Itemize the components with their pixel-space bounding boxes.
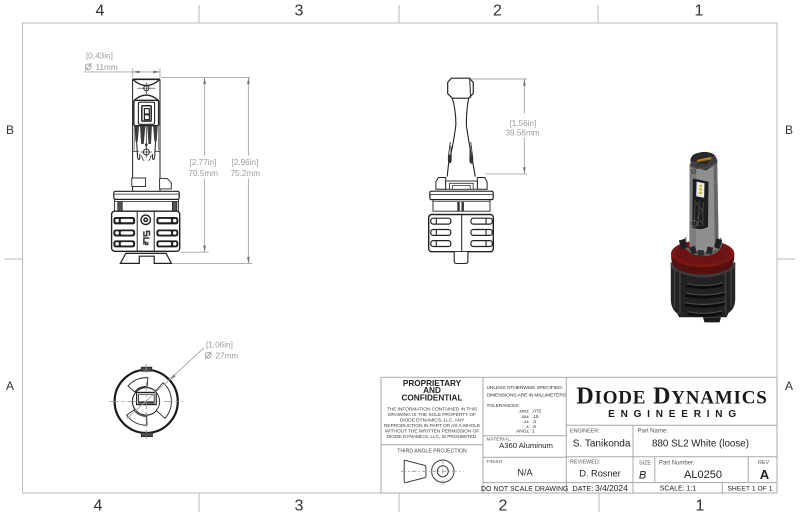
svg-text:2: 2 — [493, 3, 502, 20]
svg-text:DRAWING IS THE SOLE PROPERTY O: DRAWING IS THE SOLE PROPERTY OF — [388, 412, 476, 418]
svg-text:.xx±: .xx± — [520, 414, 529, 420]
svg-text:880 SL2 White (loose): 880 SL2 White (loose) — [652, 438, 749, 449]
svg-text:[1.56in]: [1.56in] — [510, 119, 537, 128]
svg-text:2: 2 — [499, 498, 508, 515]
svg-text:A: A — [785, 379, 793, 393]
svg-text:[0.43in]: [0.43in] — [86, 51, 113, 60]
svg-text:1: 1 — [696, 498, 705, 515]
svg-text:A: A — [6, 379, 14, 393]
svg-text:B: B — [639, 469, 646, 481]
svg-text:SHEET 1 OF 1: SHEET 1 OF 1 — [727, 486, 772, 493]
svg-text:REVIEWED:: REVIEWED: — [570, 459, 600, 465]
svg-text:11mm: 11mm — [96, 63, 118, 72]
svg-text:[2.96in]: [2.96in] — [232, 158, 259, 167]
svg-text:DIMENSIONS ARE IN MILLIMETERS: DIMENSIONS ARE IN MILLIMETERS — [487, 393, 567, 399]
svg-text:Part Name:: Part Name: — [638, 429, 669, 435]
svg-text:.075: .075 — [532, 409, 541, 415]
svg-text:B: B — [785, 123, 793, 137]
svg-text:D. Rosner: D. Rosner — [579, 469, 620, 479]
svg-text:[2.77in]: [2.77in] — [190, 158, 217, 167]
svg-text:CONFIDENTIAL: CONFIDENTIAL — [402, 394, 463, 403]
svg-text:27mm: 27mm — [216, 351, 239, 360]
svg-text:4: 4 — [94, 498, 103, 515]
svg-text:1: 1 — [532, 429, 535, 435]
svg-text:A: A — [760, 467, 770, 482]
svg-text:UNLESS OTHERWISE SPECIFIED:: UNLESS OTHERWISE SPECIFIED: — [487, 385, 563, 391]
svg-text:39.56mm: 39.56mm — [506, 129, 540, 138]
svg-text:AL0250: AL0250 — [684, 469, 722, 481]
svg-text:DO NOT SCALE DRAWING: DO NOT SCALE DRAWING — [481, 486, 569, 493]
svg-text:ANG±: ANG± — [516, 429, 529, 435]
svg-text:1: 1 — [695, 3, 704, 20]
svg-text:3: 3 — [295, 3, 304, 20]
svg-text:DIODE DYNAMICS, LLC, IS PROHIB: DIODE DYNAMICS, LLC, IS PROHIBITED. — [387, 434, 478, 440]
svg-text:WITHOUT THE WRITTEN PERMISSION: WITHOUT THE WRITTEN PERMISSION OF — [385, 429, 479, 435]
svg-text:.xxx±: .xxx± — [518, 409, 529, 415]
svg-text:REPRODUCTION IN PART OR AS A W: REPRODUCTION IN PART OR AS A WHOLE — [384, 423, 481, 429]
svg-text:ENGINEER:: ENGINEER: — [570, 428, 600, 434]
svg-text:REV: REV — [758, 460, 769, 466]
svg-text:DATE: 3/4/2024: DATE: 3/4/2024 — [573, 483, 629, 493]
svg-text:3: 3 — [295, 498, 304, 515]
svg-text:N/A: N/A — [517, 468, 532, 478]
svg-text:THIRD ANGLE PROJECTION: THIRD ANGLE PROJECTION — [397, 449, 467, 455]
svg-text:70.5mm: 70.5mm — [189, 169, 219, 178]
svg-text:SIZE: SIZE — [639, 460, 651, 466]
svg-text:DIODE DYNAMICS, LLC. ANY: DIODE DYNAMICS, LLC. ANY — [400, 418, 465, 424]
svg-text:B: B — [6, 123, 14, 137]
svg-text:SCALE: 1:1: SCALE: 1:1 — [660, 486, 697, 493]
svg-text:[1.06in]: [1.06in] — [206, 340, 233, 349]
svg-text:FINISH:: FINISH: — [487, 459, 504, 465]
svg-text:ENGINEERING: ENGINEERING — [608, 409, 742, 420]
svg-text:S. Tanikonda: S. Tanikonda — [573, 438, 631, 449]
svg-text:THE INFORMATION CONTAINED IN T: THE INFORMATION CONTAINED IN THIS — [387, 407, 478, 413]
svg-text:Part Number:: Part Number: — [659, 460, 695, 466]
svg-text:DIODE DYNAMICS: DIODE DYNAMICS — [576, 384, 767, 410]
svg-text:TOLERANCES:: TOLERANCES: — [487, 403, 520, 409]
svg-text:4: 4 — [96, 3, 105, 20]
svg-text:A360 Aluminum: A360 Aluminum — [499, 441, 553, 450]
svg-text:.15: .15 — [532, 414, 539, 420]
svg-text:75.2mm: 75.2mm — [231, 169, 261, 178]
